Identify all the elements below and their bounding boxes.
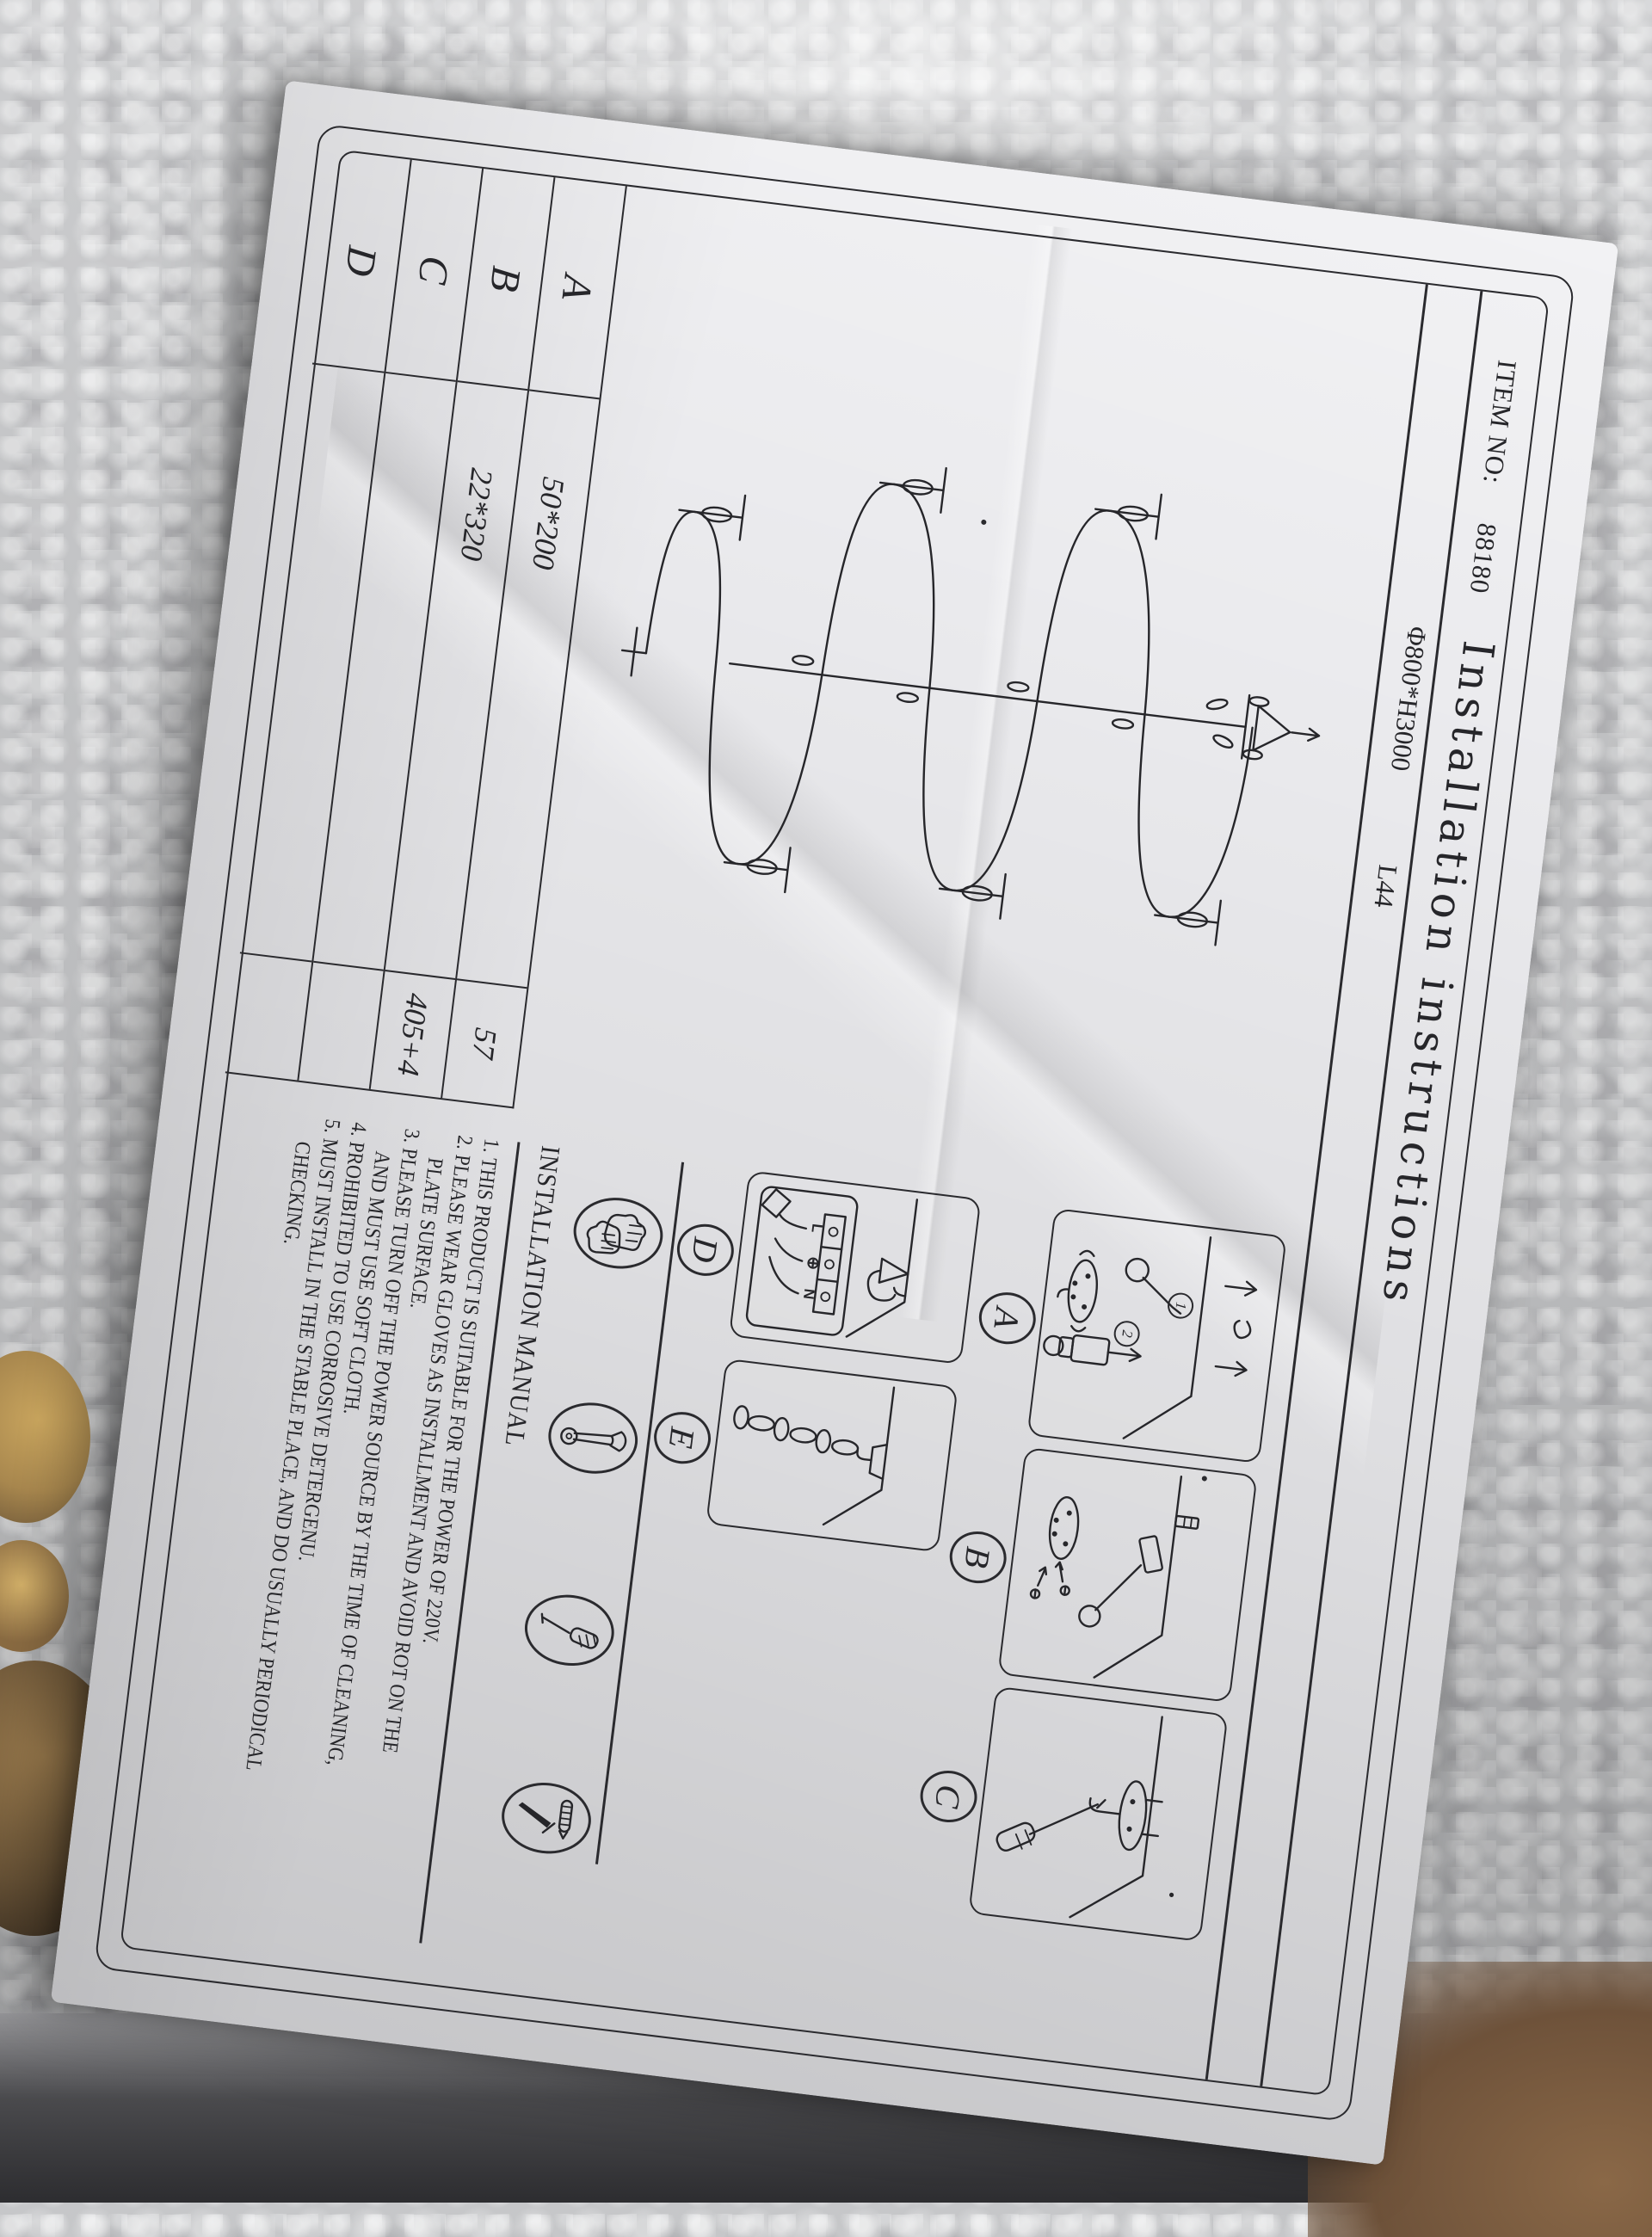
chandelier-drawing: [589, 410, 1357, 976]
instruction-sheet: ITEM NO:88180 Installation instructions …: [51, 80, 1619, 2165]
panel-a-diagram: 1 2: [1026, 1208, 1286, 1464]
canopy-wiring-drawing: [730, 1173, 979, 1363]
panel-d-diagram: L ⊕ N: [729, 1170, 982, 1365]
lamp-count: L44: [1368, 863, 1403, 909]
part-qty: 57: [442, 980, 527, 1106]
part-qty: [299, 963, 383, 1089]
panel-b-diagram: [997, 1447, 1257, 1703]
earth-terminal-icon: ⊕: [802, 1255, 823, 1272]
neutral-terminal-label: N: [799, 1288, 817, 1301]
chain-hanging-drawing: [707, 1360, 956, 1550]
anchor-hammering-drawing: [1000, 1449, 1256, 1701]
part-qty: [225, 953, 311, 1080]
panel-e-diagram: [706, 1359, 959, 1553]
part-qty: 405+4: [371, 971, 455, 1098]
plate-screwing-drawing: [970, 1688, 1226, 1940]
ceiling-drilling-drawing: [1029, 1210, 1285, 1462]
panel-c-diagram: [968, 1686, 1228, 1942]
